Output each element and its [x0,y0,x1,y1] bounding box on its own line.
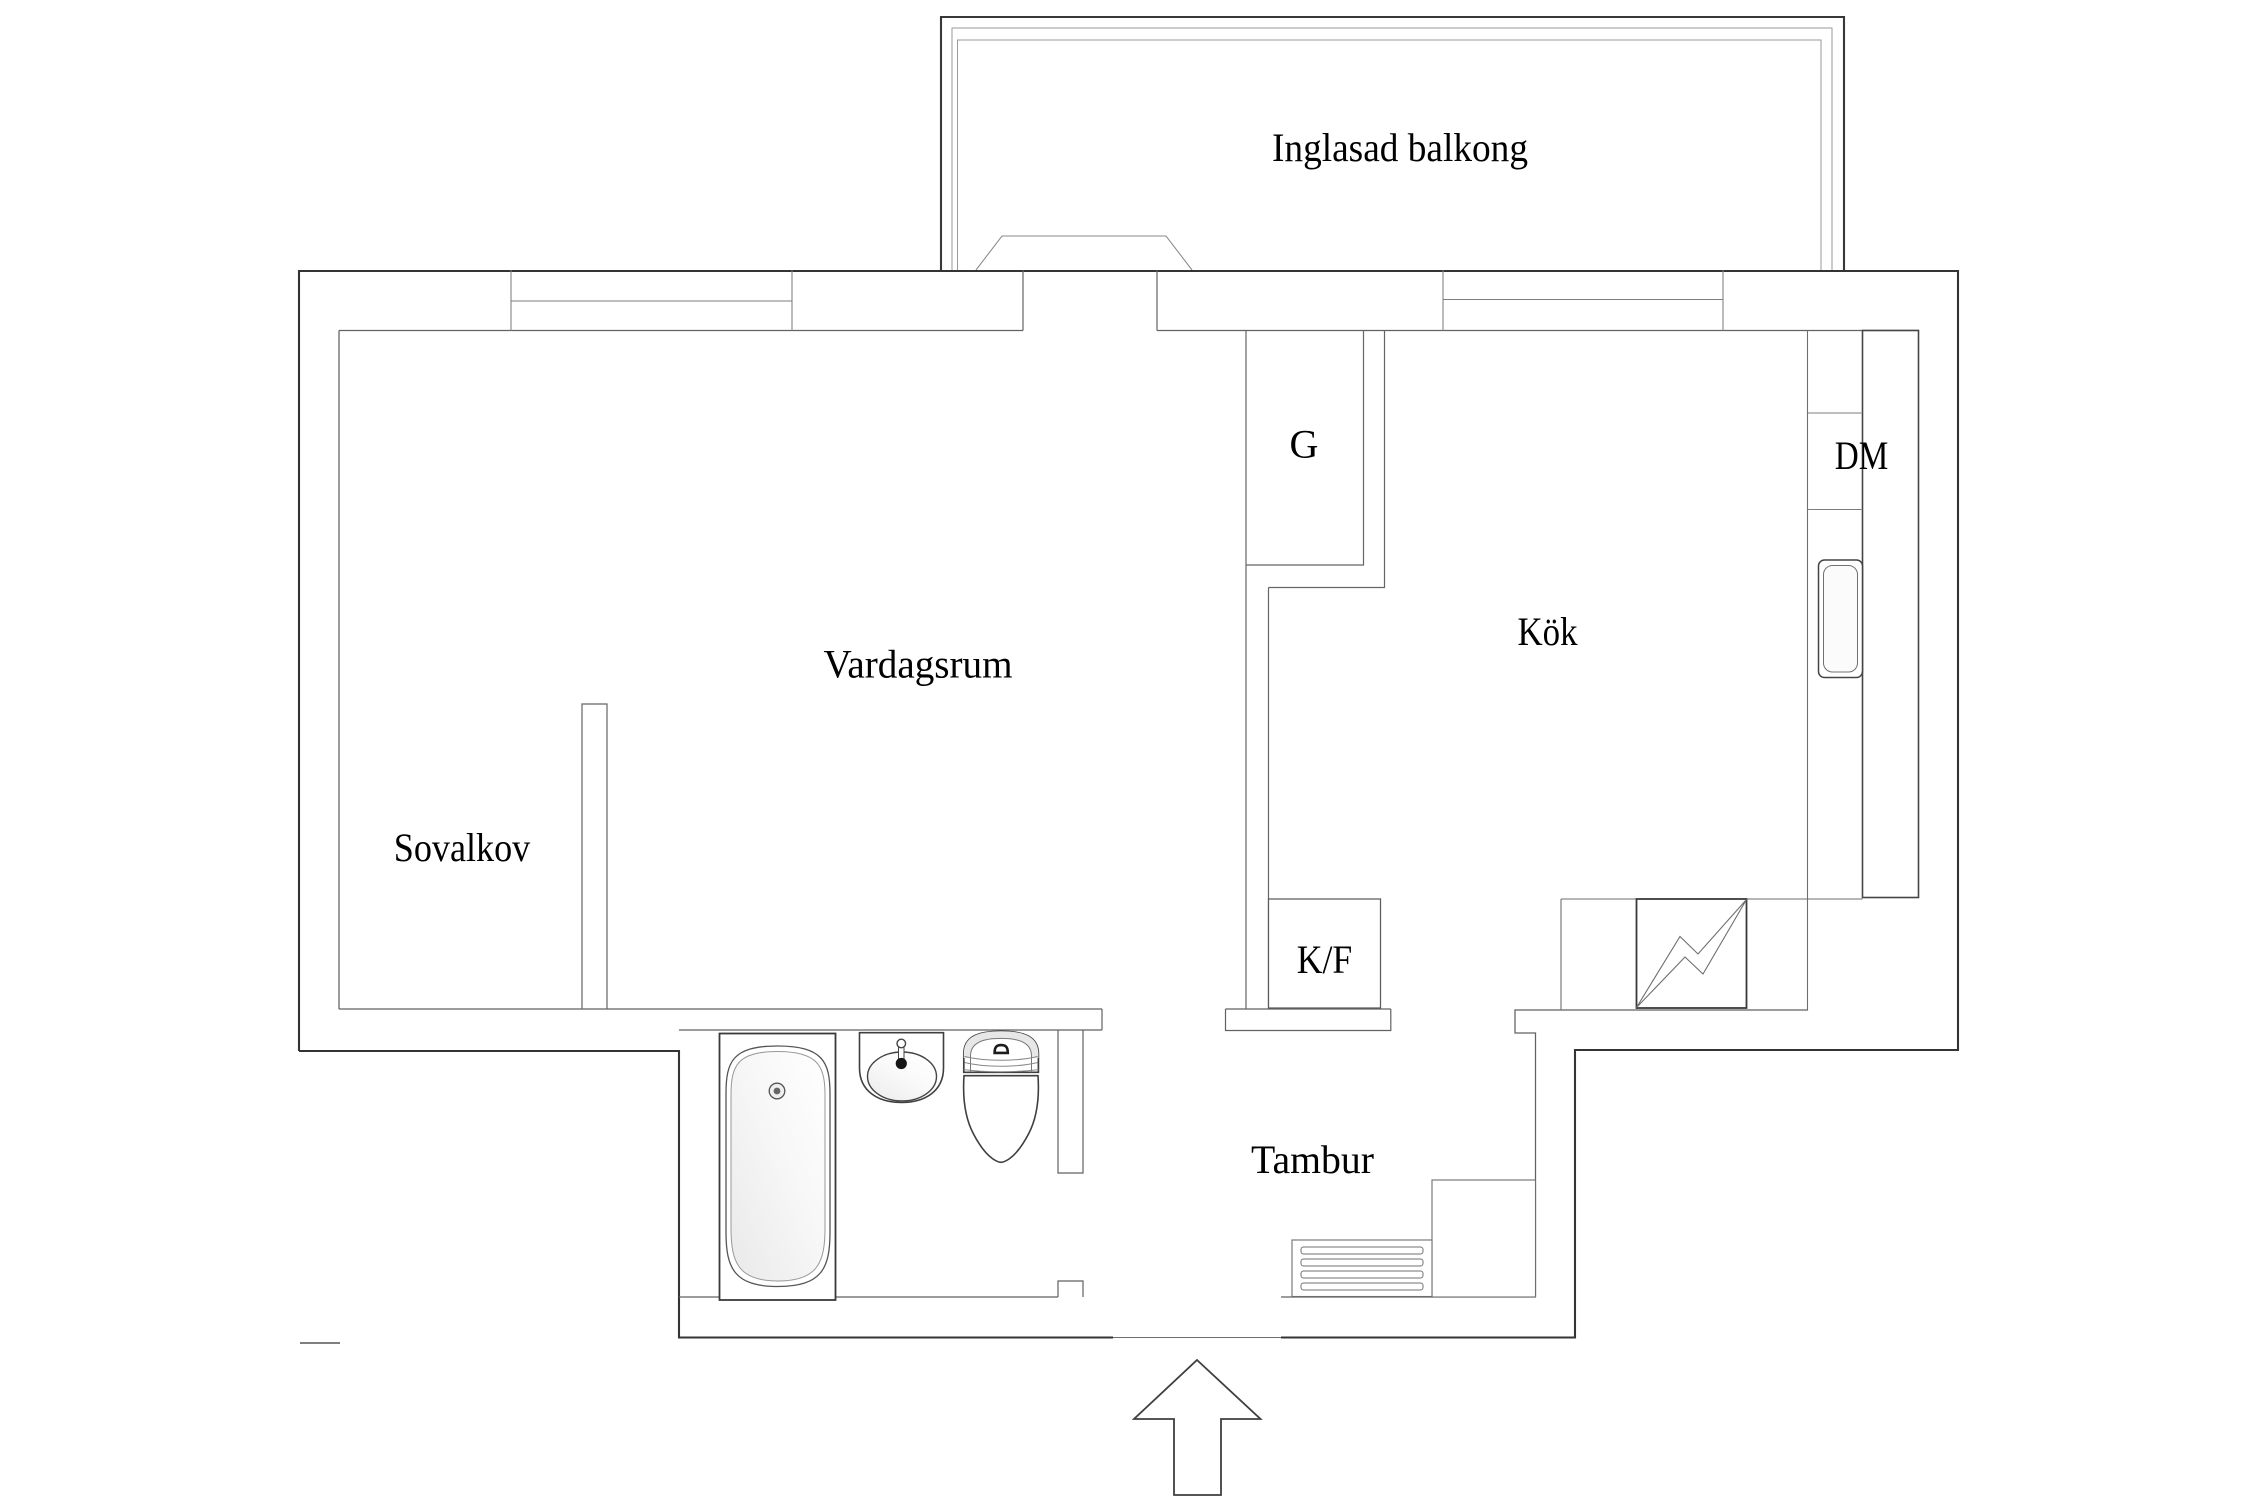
svg-text:Vardagsrum: Vardagsrum [824,642,1013,687]
svg-text:K/F: K/F [1297,937,1353,982]
svg-text:Kök: Kök [1518,609,1578,654]
svg-text:Sovalkov: Sovalkov [394,825,531,870]
svg-text:Tambur: Tambur [1251,1137,1374,1182]
svg-text:DM: DM [1835,433,1889,478]
svg-text:Inglasad balkong: Inglasad balkong [1272,125,1528,170]
svg-text:G: G [1290,422,1319,467]
